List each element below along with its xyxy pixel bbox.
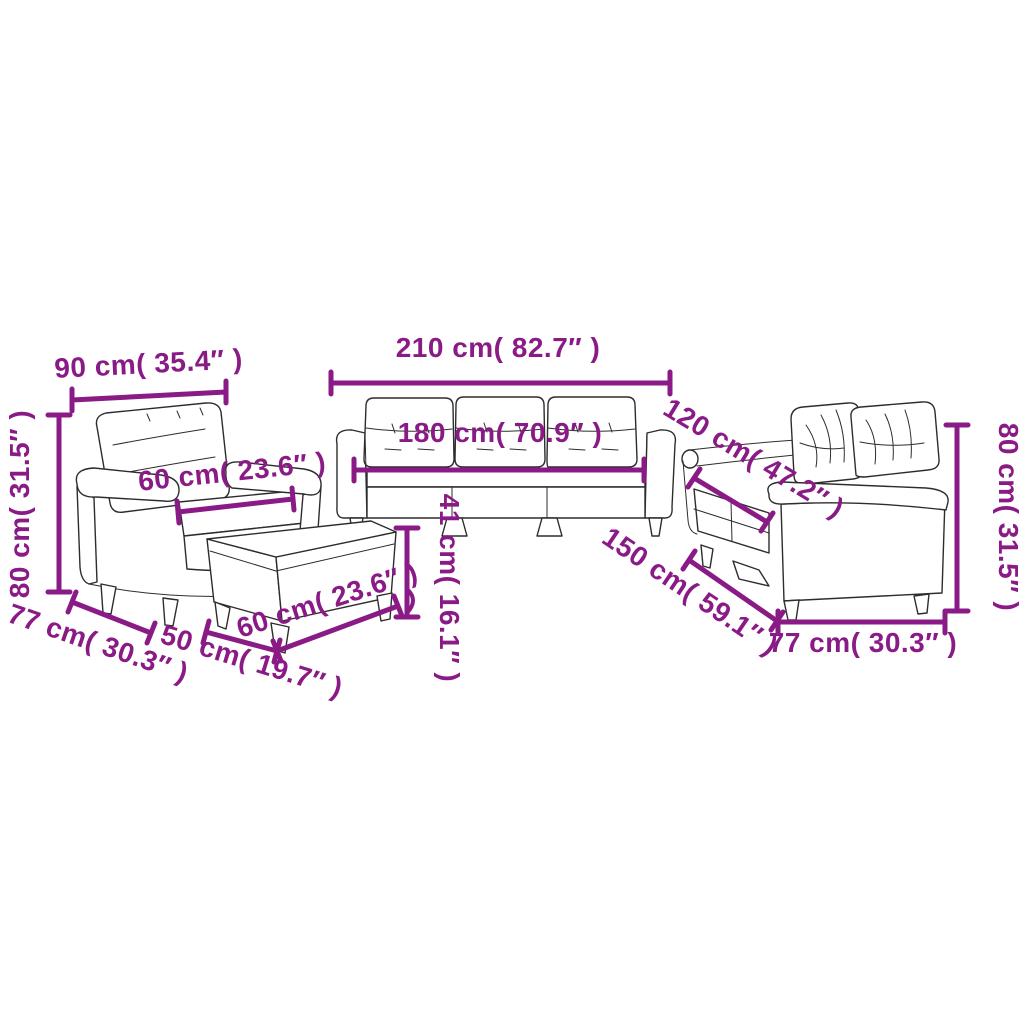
diagram-canvas: 90 cm( 35.4″ ) 80 cm( 31.5″ ) 77 cm( 30.… — [0, 0, 1024, 1024]
dim-sofa-seat-width-label: 180 cm( 70.9″ ) — [398, 417, 603, 448]
dim-loveseat-depth: 77 cm( 30.3″ ) — [769, 611, 958, 658]
dim-armchair-width-label: 90 cm( 35.4″ ) — [54, 343, 244, 384]
product-dimension-diagram: 90 cm( 35.4″ ) 80 cm( 31.5″ ) 77 cm( 30.… — [0, 0, 1024, 1024]
dim-sofa-width-label: 210 cm( 82.7″ ) — [396, 332, 601, 363]
dim-loveseat-height: 80 cm( 31.5″ ) — [946, 423, 1024, 612]
dimension-line — [331, 372, 670, 394]
dim-loveseat-depth-label: 77 cm( 30.3″ ) — [769, 627, 958, 658]
dim-footstool-height-label: 41 cm( 16.1″ ) — [434, 494, 465, 683]
dim-armchair-height: 80 cm( 31.5″ ) — [4, 410, 70, 599]
dim-sofa-width: 210 cm( 82.7″ ) — [331, 332, 670, 394]
dimension-line — [48, 415, 70, 592]
dim-loveseat-height-label: 80 cm( 31.5″ ) — [993, 423, 1024, 612]
dimension-line — [946, 425, 968, 611]
dim-armchair-width: 90 cm( 35.4″ ) — [54, 343, 244, 411]
dim-armchair-height-label: 80 cm( 31.5″ ) — [4, 410, 35, 599]
